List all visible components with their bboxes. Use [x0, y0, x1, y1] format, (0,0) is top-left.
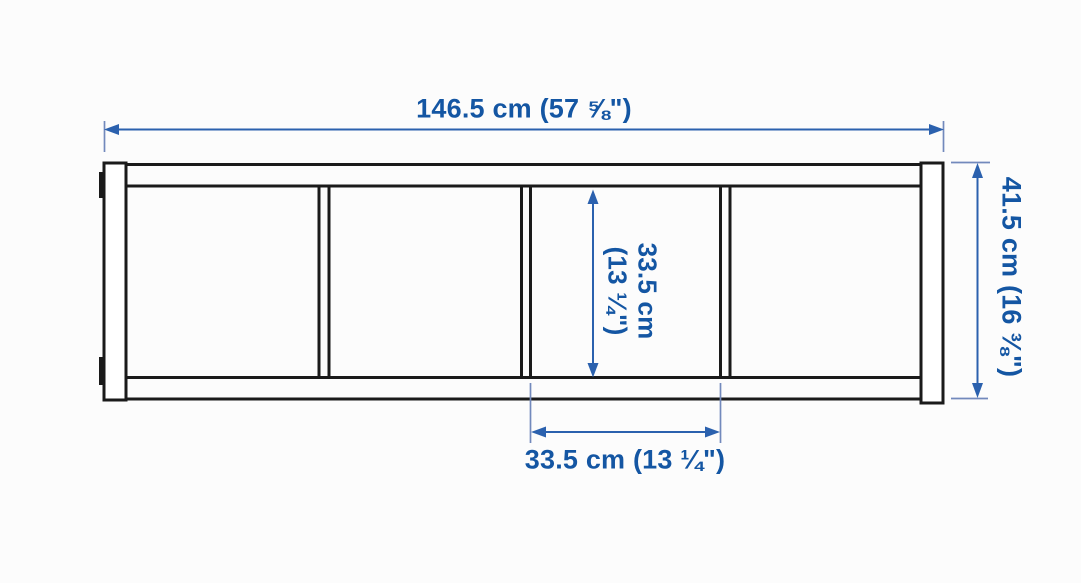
- bottom-shelf-board: [112, 378, 935, 400]
- overall-height-label: 41.5 cm (16 ⅜"): [996, 177, 1027, 377]
- compartment-height-arrowhead-top: [588, 190, 599, 205]
- width-arrowhead-right: [929, 124, 944, 135]
- height-arrowhead-bottom: [972, 383, 983, 398]
- compartment-width-arrowhead-left: [531, 427, 546, 438]
- compartment-height-label-line2: (13 ¼"): [602, 243, 632, 340]
- compartment-height-label: 33.5 cm (13 ¼"): [602, 243, 661, 340]
- overall-height-dimension: [951, 163, 990, 399]
- compartment-width-dimension: [531, 383, 721, 443]
- divider-2: [522, 186, 531, 378]
- compartment-height-label-line1: 33.5 cm: [632, 243, 662, 340]
- overall-width-dimension: [104, 121, 944, 152]
- shelf-unit: [99, 163, 943, 403]
- compartment-width-label: 33.5 cm (13 ¼"): [525, 445, 725, 476]
- top-shelf-board: [112, 165, 935, 187]
- overall-width-label: 146.5 cm (57 ⅝"): [416, 94, 632, 125]
- shelf-diagram-canvas: [0, 0, 1081, 583]
- divider-3: [721, 186, 731, 378]
- right-side-panel: [921, 163, 943, 403]
- divider-1: [319, 186, 329, 378]
- dimension-diagram: 146.5 cm (57 ⅝") 41.5 cm (16 ⅜") 33.5 cm…: [0, 0, 1081, 583]
- height-arrowhead-top: [972, 163, 983, 178]
- width-arrowhead-left: [104, 124, 119, 135]
- compartment-height-dimension: [588, 190, 599, 378]
- compartment-height-arrowhead-bottom: [588, 363, 599, 378]
- left-side-panel: [104, 163, 126, 400]
- compartment-width-arrowhead-right: [705, 427, 720, 438]
